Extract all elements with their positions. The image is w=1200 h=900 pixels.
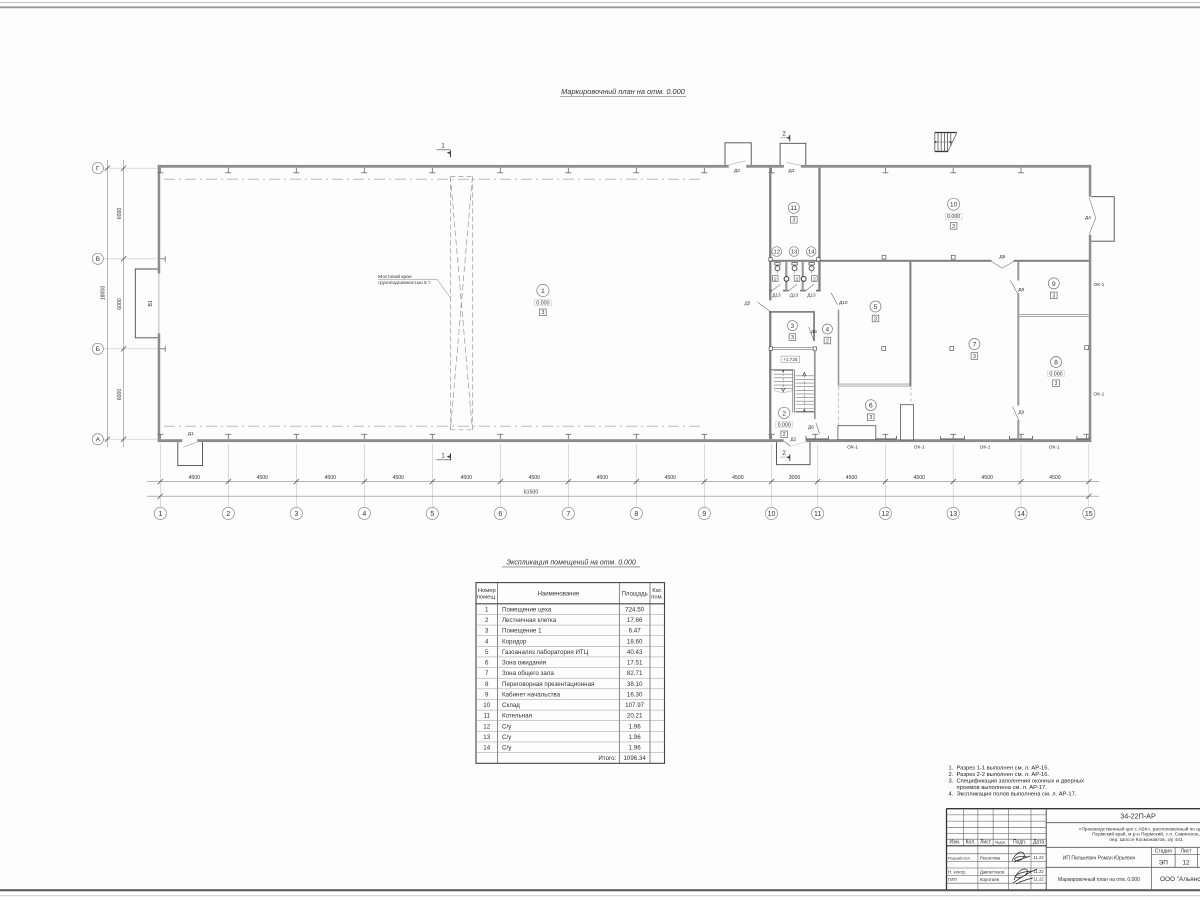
svg-text:5: 5 xyxy=(430,511,434,518)
svg-text:В1: В1 xyxy=(148,300,154,306)
svg-text:Разрез 1-1 выполнен см. л. АР-: Разрез 1-1 выполнен см. л. АР-15. xyxy=(957,766,1050,772)
svg-text:61500: 61500 xyxy=(524,490,539,496)
svg-text:12: 12 xyxy=(1182,860,1190,867)
svg-text:1: 1 xyxy=(441,453,445,460)
svg-text:4500: 4500 xyxy=(257,475,269,481)
svg-text:82.71: 82.71 xyxy=(627,670,643,677)
svg-text:Подп.: Подп. xyxy=(1013,840,1026,846)
svg-text:18000: 18000 xyxy=(101,286,107,301)
svg-text:Экспликация помещений на отм.: Экспликация помещений на отм. 0.000 xyxy=(506,559,636,567)
svg-text:3: 3 xyxy=(541,310,544,316)
svg-text:Коротаев: Коротаев xyxy=(980,877,1000,882)
svg-text:Зона ожидания: Зона ожидания xyxy=(502,660,546,667)
svg-text:Д5: Д5 xyxy=(745,301,751,307)
svg-text:0.000: 0.000 xyxy=(947,214,960,220)
svg-text:Д10: Д10 xyxy=(839,300,848,306)
svg-text:ООО "Альянс": ООО "Альянс" xyxy=(1160,876,1200,883)
svg-text:Маркировочный план на отм. 0.0: Маркировочный план на отм. 0.000 xyxy=(1058,876,1140,883)
svg-text:1.96: 1.96 xyxy=(629,734,642,741)
svg-text:ОК-1: ОК-1 xyxy=(847,444,858,450)
svg-text:5: 5 xyxy=(874,304,878,311)
svg-text:8: 8 xyxy=(634,511,638,518)
svg-text:1: 1 xyxy=(441,143,445,150)
svg-text:Лист: Лист xyxy=(1181,849,1193,855)
svg-text:3: 3 xyxy=(869,415,872,421)
svg-text:ОК-1: ОК-1 xyxy=(1094,391,1105,397)
svg-text:Б: Б xyxy=(96,346,100,353)
svg-text:40.43: 40.43 xyxy=(627,649,643,656)
svg-text:Кат.: Кат. xyxy=(652,588,662,594)
svg-text:12: 12 xyxy=(773,250,779,256)
svg-text:помещ.: помещ. xyxy=(477,594,497,600)
svg-text:Газоанализ лаборатория ИТЦ: Газоанализ лаборатория ИТЦ xyxy=(502,649,589,656)
svg-text:1.96: 1.96 xyxy=(629,745,642,752)
svg-text:14: 14 xyxy=(483,745,490,752)
svg-text:6: 6 xyxy=(498,511,502,518)
svg-text:3: 3 xyxy=(952,224,955,230)
svg-text:Переговорная презентационная: Переговорная презентационная xyxy=(502,681,594,688)
svg-text:3: 3 xyxy=(791,323,795,330)
svg-text:1: 1 xyxy=(541,288,545,295)
svg-text:14: 14 xyxy=(1017,511,1025,518)
svg-text:9: 9 xyxy=(702,511,706,518)
svg-text:724.50: 724.50 xyxy=(625,606,644,613)
svg-text:34-22П-АР: 34-22П-АР xyxy=(1120,811,1156,820)
svg-text:2: 2 xyxy=(485,617,489,624)
svg-text:№док.: №док. xyxy=(995,841,1006,845)
svg-text:1: 1 xyxy=(158,511,162,518)
svg-text:Стадия: Стадия xyxy=(1155,849,1172,855)
svg-text:ИП Пилькевич Роман Юрьевич: ИП Пилькевич Роман Юрьевич xyxy=(1063,855,1136,861)
svg-text:пом.: пом. xyxy=(651,594,663,600)
svg-text:Помещение цеха: Помещение цеха xyxy=(502,606,552,613)
svg-text:«Производственный цех с АБК»,: «Производственный цех с АБК», расположен… xyxy=(1079,826,1200,833)
svg-text:Номер: Номер xyxy=(478,588,496,594)
svg-text:1.96: 1.96 xyxy=(629,723,642,730)
svg-text:2: 2 xyxy=(796,276,799,282)
svg-text:Мостовой кран: Мостовой кран xyxy=(378,273,412,280)
svg-text:Д13: Д13 xyxy=(772,293,781,298)
svg-text:С/у: С/у xyxy=(502,745,512,752)
svg-text:4: 4 xyxy=(362,511,366,518)
svg-text:4500: 4500 xyxy=(529,475,541,481)
svg-text:Д2: Д2 xyxy=(790,437,796,443)
svg-text:4500: 4500 xyxy=(325,475,337,481)
svg-text:Д3: Д3 xyxy=(789,168,795,174)
svg-text:Кол.: Кол. xyxy=(966,840,976,846)
svg-text:пер. Шоссе Космонавтов, з/у 44: пер. Шоссе Космонавтов, з/у 441 xyxy=(1109,837,1183,843)
svg-text:ЭП: ЭП xyxy=(1159,860,1169,867)
svg-text:3: 3 xyxy=(874,316,877,322)
svg-text:9: 9 xyxy=(1052,281,1056,288)
svg-text:ОК-1: ОК-1 xyxy=(1094,282,1105,288)
svg-text:6: 6 xyxy=(485,660,489,667)
svg-text:3.: 3. xyxy=(949,779,954,785)
svg-text:2: 2 xyxy=(226,511,230,518)
svg-text:8: 8 xyxy=(1054,359,1058,366)
svg-text:2: 2 xyxy=(782,130,786,137)
svg-text:Лист: Лист xyxy=(980,840,992,846)
svg-text:14: 14 xyxy=(808,250,815,256)
svg-text:4500: 4500 xyxy=(981,475,993,481)
svg-text:Д13: Д13 xyxy=(790,293,799,298)
svg-text:6.47: 6.47 xyxy=(629,628,642,635)
svg-text:Экспликация полов выполнена см: Экспликация полов выполнена см. л. АР-17… xyxy=(957,792,1077,798)
svg-text:0.000: 0.000 xyxy=(1049,371,1062,377)
svg-text:2: 2 xyxy=(782,450,786,457)
svg-text:17.51: 17.51 xyxy=(627,660,643,667)
svg-text:4500: 4500 xyxy=(846,475,858,481)
svg-text:Изм.: Изм. xyxy=(950,840,961,846)
svg-text:Д13: Д13 xyxy=(807,293,816,298)
svg-text:Н. контр.: Н. контр. xyxy=(948,869,966,874)
svg-text:2: 2 xyxy=(813,276,816,282)
svg-text:Зона общего зала: Зона общего зала xyxy=(502,670,554,677)
svg-text:15: 15 xyxy=(1085,511,1093,518)
svg-text:проемов выполнена см. л. АР-17: проемов выполнена см. л. АР-17. xyxy=(957,785,1048,791)
svg-text:ОК-1: ОК-1 xyxy=(914,444,925,450)
svg-text:17.66: 17.66 xyxy=(627,617,643,624)
svg-text:12: 12 xyxy=(483,723,490,730)
svg-text:20.21: 20.21 xyxy=(627,713,643,720)
svg-text:4500: 4500 xyxy=(393,475,405,481)
svg-text:4500: 4500 xyxy=(461,475,473,481)
svg-text:С/у: С/у xyxy=(502,723,512,730)
svg-text:10: 10 xyxy=(950,202,958,209)
svg-text:2: 2 xyxy=(783,432,786,438)
svg-text:3: 3 xyxy=(485,628,489,635)
svg-text:ГИП: ГИП xyxy=(948,877,957,882)
svg-text:6000: 6000 xyxy=(117,389,123,401)
svg-text:3: 3 xyxy=(973,354,976,360)
svg-text:1: 1 xyxy=(485,606,489,613)
svg-text:Д9: Д9 xyxy=(811,329,817,335)
svg-text:3: 3 xyxy=(294,511,298,518)
svg-text:5: 5 xyxy=(485,649,489,656)
svg-text:11.22: 11.22 xyxy=(1034,877,1045,882)
svg-text:4500: 4500 xyxy=(189,475,201,481)
svg-text:Итого:: Итого: xyxy=(598,755,616,762)
svg-text:13: 13 xyxy=(483,734,490,741)
svg-text:8: 8 xyxy=(485,681,489,688)
svg-text:3: 3 xyxy=(791,335,794,341)
svg-text:Д4: Д4 xyxy=(1085,215,1091,221)
svg-text:Котельная: Котельная xyxy=(502,713,532,720)
svg-text:6: 6 xyxy=(869,403,873,410)
svg-text:7: 7 xyxy=(566,511,570,518)
svg-text:2.: 2. xyxy=(949,772,954,778)
svg-text:4500: 4500 xyxy=(1049,475,1061,481)
svg-text:Решетова: Решетова xyxy=(980,855,1001,860)
svg-text:0.000: 0.000 xyxy=(536,301,549,307)
svg-text:ОК-1: ОК-1 xyxy=(1049,444,1060,450)
svg-text:Спецификация заполнения оконны: Спецификация заполнения оконных и дверны… xyxy=(957,779,1085,785)
svg-text:Склад: Склад xyxy=(502,702,520,709)
svg-text:Маркировочный план на отм. 0.: Маркировочный план на отм. 0.000 xyxy=(561,87,686,96)
svg-text:+1.725: +1.725 xyxy=(783,357,798,362)
svg-text:11: 11 xyxy=(814,511,821,518)
svg-text:4500: 4500 xyxy=(732,475,744,481)
svg-text:0.000: 0.000 xyxy=(778,423,791,429)
svg-text:ОК-1: ОК-1 xyxy=(980,444,991,450)
svg-text:В: В xyxy=(96,256,101,263)
svg-text:Площадь: Площадь xyxy=(622,591,648,597)
svg-text:3: 3 xyxy=(792,218,795,224)
svg-text:11.22: 11.22 xyxy=(1034,855,1045,860)
svg-text:4500: 4500 xyxy=(665,475,677,481)
svg-text:12: 12 xyxy=(882,511,890,518)
svg-text:1096.34: 1096.34 xyxy=(623,755,646,762)
svg-text:6000: 6000 xyxy=(117,298,123,310)
svg-text:107.97: 107.97 xyxy=(625,702,644,709)
svg-text:3: 3 xyxy=(1052,293,1055,299)
svg-text:Кабинет начальства: Кабинет начальства xyxy=(502,691,561,698)
svg-text:Пермский край, м.р-н Пермский,: Пермский край, м.р-н Пермский, с.п. Сави… xyxy=(1092,831,1200,838)
svg-text:38.10: 38.10 xyxy=(627,681,643,688)
svg-text:Д1: Д1 xyxy=(188,431,194,437)
svg-text:10: 10 xyxy=(768,511,776,518)
svg-text:4500: 4500 xyxy=(914,475,926,481)
svg-text:2: 2 xyxy=(782,410,786,417)
svg-text:Д3: Д3 xyxy=(734,168,740,174)
svg-text:Лестничная клетка: Лестничная клетка xyxy=(502,617,557,624)
svg-text:3000: 3000 xyxy=(789,475,801,481)
svg-text:3: 3 xyxy=(1055,381,1058,387)
svg-text:Давлетгазов: Давлетгазов xyxy=(980,869,1005,874)
svg-text:А: А xyxy=(96,437,101,444)
svg-text:13: 13 xyxy=(949,511,957,518)
svg-text:10: 10 xyxy=(483,702,490,709)
svg-text:Д8: Д8 xyxy=(999,254,1005,260)
svg-text:13: 13 xyxy=(791,250,797,256)
svg-text:С/у: С/у xyxy=(502,734,512,741)
svg-text:2: 2 xyxy=(826,338,829,344)
svg-text:1.: 1. xyxy=(949,766,954,772)
svg-text:4: 4 xyxy=(485,638,489,645)
svg-text:Разработал: Разработал xyxy=(948,855,970,860)
svg-text:6000: 6000 xyxy=(117,208,123,220)
svg-text:Помещение 1: Помещение 1 xyxy=(502,628,542,635)
svg-text:грузоподъемностью 5 т: грузоподъемностью 5 т xyxy=(378,280,431,286)
svg-text:Коридор: Коридор xyxy=(502,638,527,645)
svg-text:Разрез 2-2 выполнен см. л. АР-: Разрез 2-2 выполнен см. л. АР-16. xyxy=(957,772,1050,778)
svg-text:Д9: Д9 xyxy=(1018,410,1024,416)
svg-text:16.30: 16.30 xyxy=(627,691,643,698)
svg-text:Г: Г xyxy=(96,166,100,173)
svg-text:2: 2 xyxy=(774,276,777,282)
svg-text:4500: 4500 xyxy=(597,475,609,481)
svg-text:9: 9 xyxy=(485,691,489,698)
svg-text:Наименование: Наименование xyxy=(538,591,580,597)
svg-text:Д6: Д6 xyxy=(808,424,814,430)
svg-text:18.60: 18.60 xyxy=(627,638,643,645)
svg-text:11: 11 xyxy=(790,205,797,212)
svg-text:11: 11 xyxy=(484,713,491,720)
svg-text:4.: 4. xyxy=(949,792,954,798)
svg-text:7: 7 xyxy=(973,341,977,348)
svg-text:Д9: Д9 xyxy=(1018,287,1024,293)
svg-text:Дата: Дата xyxy=(1033,840,1044,846)
svg-text:7: 7 xyxy=(485,670,489,677)
svg-text:4: 4 xyxy=(826,326,830,333)
